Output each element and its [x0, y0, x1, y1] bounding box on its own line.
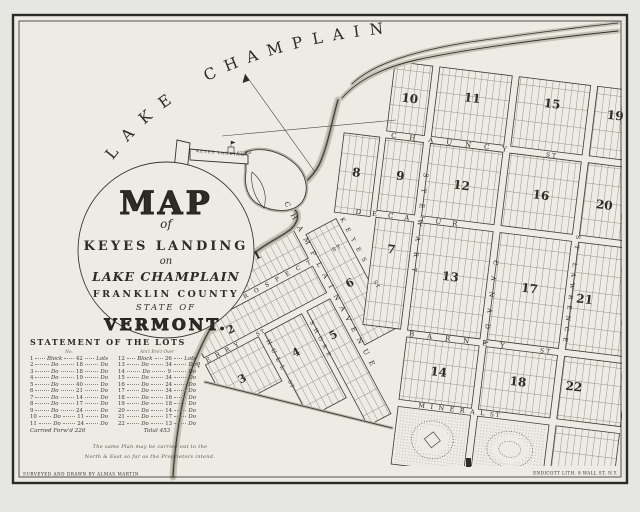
block-label-16: 16: [532, 187, 550, 203]
street-label-mineral-st: ST: [489, 411, 501, 419]
block-15-parcel: [511, 77, 591, 155]
street-label-barney-st: ST: [540, 347, 553, 355]
lot-block-word: Do: [141, 421, 149, 427]
statement-title: STATEMENT OF THE LOTS: [30, 337, 198, 347]
cartouche-state-of: STATE OF: [136, 303, 196, 313]
lot-word: Do: [188, 421, 196, 427]
block-label-12: 12: [452, 178, 470, 194]
garden-plot-west: [391, 406, 471, 472]
store-label: STORE: [237, 151, 252, 155]
margin-top: [0, 0, 640, 14]
total-line: Total 453: [118, 428, 196, 434]
block-label-8: 8: [351, 165, 361, 180]
plan-note-line2: North & East so far as the Proprietors i…: [62, 452, 238, 462]
block-label-13: 13: [441, 269, 459, 285]
plan-note-line1: The same Plan may be carried out to the: [62, 442, 238, 452]
monument-mark: [466, 458, 471, 467]
lot-block-no: 22: [118, 421, 125, 427]
block-label-9: 9: [395, 168, 405, 183]
cartouche-franklin-county: FRANKLIN COUNTY: [93, 289, 239, 300]
block-label-10: 10: [401, 91, 419, 107]
credit-surveyor: SURVEYED AND DRAWN BY ALMAS MARTIN: [23, 472, 139, 477]
block-11-parcel: [431, 67, 512, 145]
lot-block-word: Do: [53, 421, 61, 427]
margin-left: [0, 0, 12, 512]
block-label-14: 14: [429, 364, 447, 380]
block-label-17: 17: [520, 281, 538, 297]
block-label-22: 22: [565, 379, 583, 395]
lots-right-rows: 12Block26Lots13Do34Do14Do9Do15Do34Do16Do…: [118, 356, 196, 427]
cartouche-lake-champlain: LAKE CHAMPLAIN: [91, 269, 240, 284]
map-sheet: { "map": { "water": { "word1": "LAKE", "…: [0, 0, 640, 512]
plan-notes: The same Plan may be carried out to the …: [62, 442, 238, 462]
block-label-11: 11: [463, 90, 481, 106]
margin-bottom: [0, 484, 640, 512]
block-label-21: 21: [575, 291, 593, 307]
street-label-chauncy-st: ST: [545, 152, 558, 160]
lots-column-right: Am't Bro't Over 12Block26Lots13Do34Do14D…: [118, 350, 196, 434]
lot-row: 22Do13Do: [118, 421, 196, 427]
block-label-7: 7: [386, 242, 396, 257]
lot-row: 11Do24Do: [30, 421, 108, 427]
block-label-18: 18: [509, 374, 527, 390]
cartouche-vermont: VERMONT.: [103, 315, 228, 334]
cartouche: MAP of KEYES LANDING on LAKE CHAMPLAIN F…: [78, 162, 254, 338]
lot-count: 24: [77, 421, 84, 427]
block-label-19: 19: [606, 108, 624, 124]
lots-column-left: No. 1Block42Lots2Do18Do3Do18Do4Do19Do5Do…: [30, 350, 108, 434]
lots-left-rows: 1Block42Lots2Do18Do3Do18Do4Do19Do5Do40Do…: [30, 356, 108, 427]
cartouche-on: on: [160, 256, 172, 267]
lot-count: 13: [165, 421, 172, 427]
block-label-15: 15: [543, 96, 561, 112]
statement-table: STATEMENT OF THE LOTS No. 1Block42Lots2D…: [30, 337, 198, 434]
map-canvas: KEYES LANDING STORE 10 11 15 19 8 9 12 1…: [0, 0, 640, 512]
lot-word: Do: [100, 421, 108, 427]
block-label-20: 20: [595, 197, 613, 213]
margin-right: [622, 0, 640, 512]
carried-forward: Carried Forw'd 226: [30, 428, 108, 434]
lot-block-no: 11: [30, 421, 37, 427]
cartouche-keyes-landing: KEYES LANDING: [84, 239, 249, 254]
credit-lithographer: ENDICOTT LITH. 8 WALL ST. N.Y.: [533, 471, 618, 476]
